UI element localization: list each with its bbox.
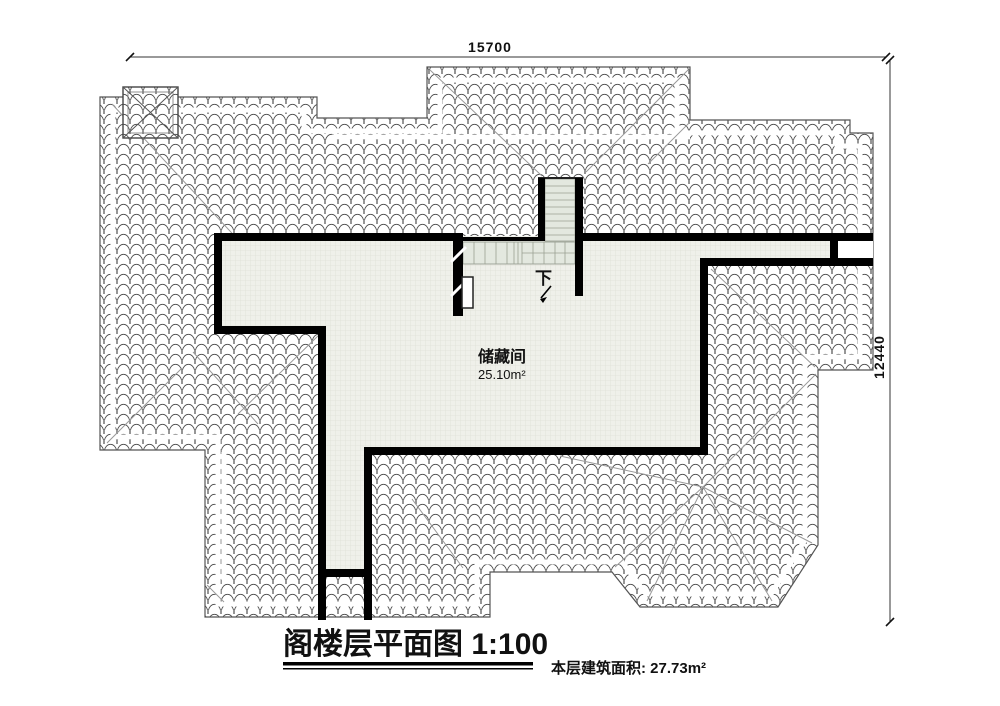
room-label-group: 储藏间 25.10m²	[477, 347, 526, 382]
floor-plan-canvas: 下 储藏间 25.10m²	[0, 0, 1000, 706]
chimney	[123, 87, 178, 138]
title-block: 阁楼层平面图 1:100 本层建筑面积: 27.73m²	[283, 627, 706, 677]
wall-shaft-left	[538, 178, 545, 241]
wall-top-left	[214, 233, 463, 241]
title-underline-thick	[283, 662, 533, 666]
east-wall-opening	[838, 241, 873, 259]
stair-down-label: 下	[535, 269, 552, 288]
wall-shaft-pier	[575, 241, 583, 296]
wall-bottom	[364, 447, 708, 455]
wall-left-upper	[214, 233, 222, 334]
wall-step	[214, 326, 326, 334]
wall-stair-opening-edge	[463, 237, 538, 241]
floor-area-note: 本层建筑面积: 27.73m²	[551, 659, 706, 677]
room-name-label: 储藏间	[477, 347, 526, 366]
wall-right	[700, 266, 708, 455]
floor-plan-page: 下 储藏间 25.10m²	[0, 0, 1000, 706]
dim-top-value: 15700	[468, 39, 512, 55]
wall-top-right	[583, 233, 873, 241]
wall-strip-right	[364, 455, 372, 620]
room-area-label: 25.10m²	[478, 367, 526, 382]
wall-shaft-right	[575, 178, 583, 241]
wall-corridor-bottom	[700, 258, 873, 266]
stair-shaft	[545, 179, 575, 241]
plan-title: 阁楼层平面图 1:100	[283, 627, 548, 661]
wall-left-lower	[318, 334, 326, 620]
door-leaf	[462, 277, 473, 308]
title-underline-thin	[283, 668, 533, 670]
wall-strip-bottom	[318, 569, 372, 577]
dim-right-value: 12440	[871, 335, 887, 379]
